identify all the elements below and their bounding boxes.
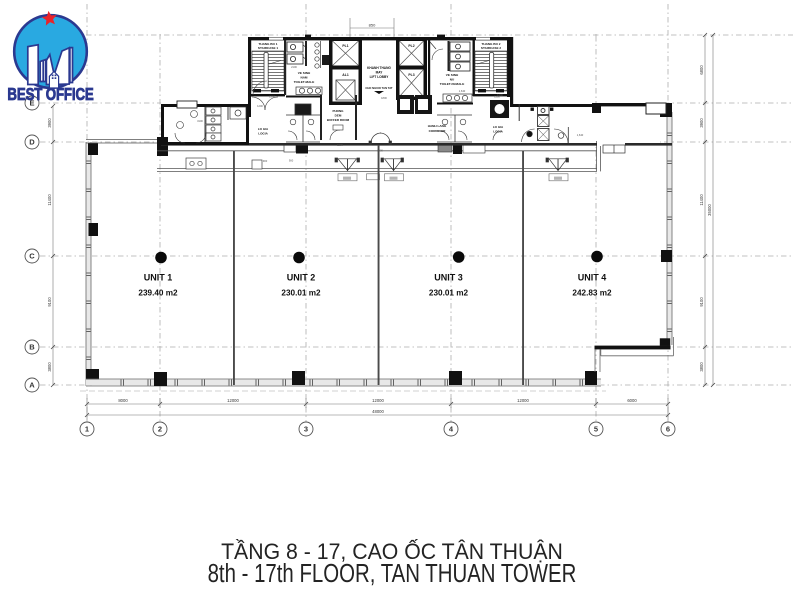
svg-text:PHONG: PHONG: [332, 109, 344, 113]
svg-text:230.01 m2: 230.01 m2: [281, 289, 321, 298]
svg-text:8000: 8000: [118, 398, 128, 403]
svg-text:BUFFER ROOM: BUFFER ROOM: [327, 118, 350, 122]
svg-text:BEST OFFICE: BEST OFFICE: [7, 85, 93, 104]
svg-text:242.83 m2: 242.83 m2: [572, 289, 612, 298]
svg-text:230.01 m2: 230.01 m2: [429, 289, 469, 298]
svg-text:6: 6: [666, 425, 670, 434]
svg-text:UNIT 4: UNIT 4: [578, 273, 607, 283]
svg-text:1500: 1500: [269, 95, 275, 99]
svg-text:1,640: 1,640: [459, 89, 466, 93]
svg-text:PL3: PL3: [408, 73, 414, 77]
svg-text:9100: 9100: [699, 297, 704, 307]
svg-text:NAM: NAM: [300, 75, 307, 79]
svg-text:3800: 3800: [47, 362, 52, 372]
svg-text:UNIT 1: UNIT 1: [144, 273, 173, 283]
svg-text:NU: NU: [450, 77, 455, 81]
svg-text:9100: 9100: [47, 297, 52, 307]
svg-text:1200: 1200: [257, 104, 263, 108]
svg-text:12000: 12000: [517, 398, 529, 403]
svg-text:A: A: [29, 381, 35, 390]
svg-text:12000: 12000: [372, 398, 384, 403]
svg-text:1: 1: [85, 425, 89, 434]
svg-text:DEM: DEM: [335, 113, 342, 117]
svg-text:3900: 3900: [47, 118, 52, 128]
svg-text:VE SINH: VE SINH: [298, 71, 311, 75]
svg-text:1500: 1500: [494, 95, 500, 99]
svg-text:KHANH THANG: KHANH THANG: [367, 66, 391, 70]
svg-text:LO GIA: LO GIA: [493, 125, 504, 129]
svg-text:850: 850: [369, 23, 376, 28]
svg-text:STAIRCASE 1: STAIRCASE 1: [258, 46, 279, 50]
svg-text:3900: 3900: [699, 118, 704, 128]
svg-text:6000: 6000: [627, 398, 637, 403]
svg-text:PL1: PL1: [342, 44, 348, 48]
svg-text:5: 5: [594, 425, 598, 434]
svg-text:UNIT 2: UNIT 2: [287, 273, 316, 283]
svg-text:11400: 11400: [699, 194, 704, 206]
svg-text:1,640: 1,640: [577, 133, 584, 137]
svg-text:MAY: MAY: [376, 70, 384, 74]
svg-text:3: 3: [304, 425, 308, 434]
svg-text:PL2: PL2: [408, 44, 414, 48]
svg-text:UNIT 3: UNIT 3: [434, 273, 463, 283]
svg-text:D: D: [29, 138, 35, 147]
svg-text:LIFT LOBBY: LIFT LOBBY: [370, 75, 390, 79]
svg-text:CHO NGUOI TAN TAT: CHO NGUOI TAN TAT: [365, 86, 393, 90]
svg-text:3800: 3800: [699, 362, 704, 372]
svg-text:LOGIA: LOGIA: [258, 131, 268, 135]
svg-text:AL1: AL1: [342, 73, 349, 77]
svg-text:B: B: [29, 343, 35, 352]
svg-text:48000: 48000: [372, 409, 384, 414]
svg-text:STAIRCASE 2: STAIRCASE 2: [481, 46, 502, 50]
svg-text:2: 2: [158, 425, 162, 434]
svg-text:C: C: [29, 252, 35, 261]
svg-text:11400: 11400: [47, 194, 52, 206]
svg-text:TOILET-MALE: TOILET-MALE: [294, 80, 315, 84]
svg-text:900: 900: [289, 159, 294, 163]
svg-text:2100: 2100: [291, 65, 297, 69]
svg-text:1500: 1500: [337, 143, 343, 147]
svg-text:35000: 35000: [707, 204, 712, 216]
svg-text:12000: 12000: [227, 398, 239, 403]
svg-text:900: 900: [263, 159, 268, 163]
svg-text:LO GIA: LO GIA: [258, 127, 269, 131]
svg-text:239.40 m2: 239.40 m2: [138, 289, 178, 298]
svg-text:CORRIDOR: CORRIDOR: [429, 129, 447, 133]
svg-text:1800: 1800: [377, 149, 383, 153]
svg-text:TOILET-FEMALE: TOILET-FEMALE: [440, 82, 465, 86]
svg-text:VE SINH: VE SINH: [446, 73, 459, 77]
svg-text:1800: 1800: [381, 96, 387, 100]
svg-text:6800: 6800: [699, 65, 704, 75]
svg-text:3100: 3100: [197, 119, 203, 123]
